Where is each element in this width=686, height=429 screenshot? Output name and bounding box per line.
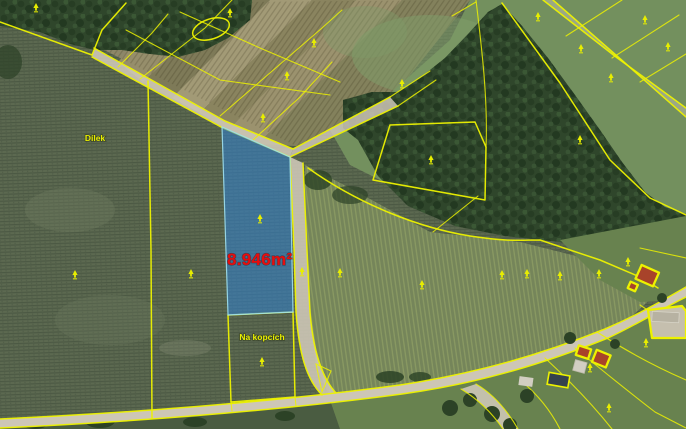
- tree: [520, 389, 534, 403]
- map-canvas[interactable]: Dílek Na kopcích 8.946m²: [0, 0, 686, 429]
- farm-building: [652, 311, 679, 322]
- bush: [183, 417, 207, 427]
- house-roof: [628, 282, 638, 292]
- field-wash: [55, 295, 165, 345]
- tree-clump: [376, 371, 404, 383]
- tree: [564, 332, 576, 344]
- meadow-light: [323, 6, 407, 58]
- highlighted-parcel[interactable]: [222, 127, 293, 315]
- tree-clump: [304, 170, 332, 190]
- field-label-na-kopcich: Na kopcích: [239, 332, 284, 342]
- tree: [657, 293, 667, 303]
- field-wash: [159, 340, 211, 356]
- field-wash: [25, 188, 115, 232]
- dark-building: [547, 372, 570, 387]
- bush: [275, 411, 295, 421]
- tree: [442, 400, 458, 416]
- tree: [610, 339, 620, 349]
- parcel-area-label: 8.946m²: [227, 250, 292, 269]
- field-label-dilek: Dílek: [85, 133, 106, 143]
